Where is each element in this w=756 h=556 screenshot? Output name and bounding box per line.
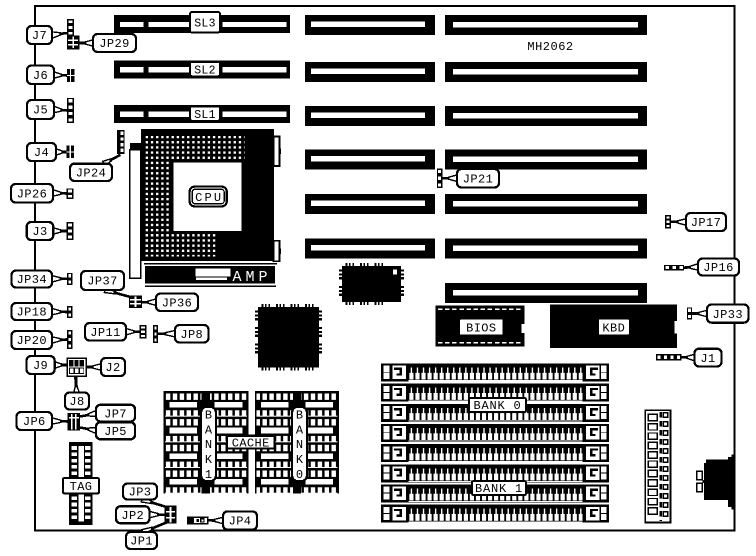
svg-text:JP18: JP18 [17,306,47,320]
svg-text:JP8: JP8 [180,328,203,342]
svg-text:J8: J8 [69,395,84,409]
svg-text:B: B [296,408,303,422]
svg-text:J5: J5 [33,104,48,118]
svg-text:CPU: CPU [195,191,223,205]
svg-text:JP5: JP5 [104,425,127,439]
svg-text:JP16: JP16 [703,261,733,275]
svg-text:JP7: JP7 [104,407,127,421]
svg-text:JP21: JP21 [463,172,493,186]
svg-text:BIOS: BIOS [466,321,496,335]
svg-text:K: K [205,453,213,467]
svg-text:CACHE: CACHE [232,436,270,450]
svg-text:N: N [205,438,212,452]
svg-text:JP37: JP37 [87,275,117,289]
svg-text:JP17: JP17 [691,216,721,230]
svg-text:A: A [296,423,304,437]
svg-text:SL3: SL3 [194,17,216,30]
svg-text:J4: J4 [34,146,49,160]
svg-text:JP4: JP4 [229,515,252,529]
svg-text:KBD: KBD [602,321,625,335]
svg-text:B: B [205,408,212,422]
svg-text:J9: J9 [33,359,48,373]
svg-text:JP26: JP26 [17,187,47,201]
svg-text:SL2: SL2 [194,64,216,77]
svg-text:JP3: JP3 [129,486,152,500]
svg-text:JP2: JP2 [121,509,144,523]
svg-text:JP24: JP24 [76,167,106,181]
svg-text:JP1: JP1 [130,535,153,549]
svg-text:JP20: JP20 [17,334,47,348]
svg-text:J6: J6 [33,69,48,83]
svg-text:MH2062: MH2062 [527,40,573,54]
svg-text:0: 0 [296,468,303,482]
svg-text:J3: J3 [32,225,47,239]
svg-text:SL1: SL1 [194,109,216,122]
svg-text:TAG: TAG [70,480,93,494]
svg-text:BANK 1: BANK 1 [475,482,523,496]
svg-text:K: K [296,453,304,467]
svg-text:1: 1 [205,468,212,482]
svg-text:JP36: JP36 [162,296,192,310]
svg-text:JP34: JP34 [17,273,47,287]
svg-text:J2: J2 [105,361,120,375]
svg-text:J1: J1 [700,352,715,366]
svg-text:BANK 0: BANK 0 [473,399,521,413]
svg-text:JP33: JP33 [713,308,743,322]
svg-text:JP29: JP29 [99,37,129,51]
svg-text:A: A [205,423,213,437]
svg-text:JP6: JP6 [23,415,46,429]
svg-text:AMP: AMP [232,269,271,286]
svg-text:J7: J7 [32,29,47,43]
svg-text:N: N [296,438,303,452]
svg-text:JP11: JP11 [90,326,120,340]
